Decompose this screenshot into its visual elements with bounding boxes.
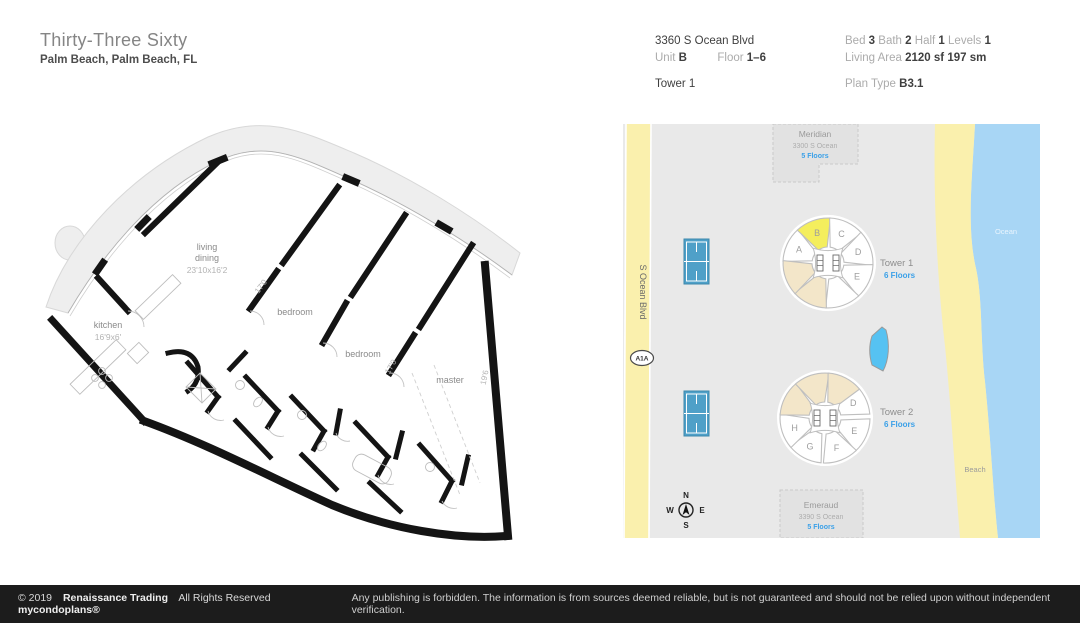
road-name-label: S Ocean Blvd <box>638 264 648 319</box>
emeraud-floors: 5 Floors <box>807 524 834 531</box>
page: Thirty-Three Sixty Palm Beach, Palm Beac… <box>0 0 1080 623</box>
plan-type-value: B3.1 <box>899 78 923 90</box>
bedroom1-label: bedroom <box>277 307 313 317</box>
footer-rights: All Rights Reserved <box>178 592 270 604</box>
title-block: Thirty-Three Sixty Palm Beach, Palm Beac… <box>40 30 197 66</box>
plan-type-label: Plan Type <box>845 78 896 90</box>
unit-letter-f[interactable]: F <box>834 443 840 453</box>
kitchen-label: kitchen <box>94 320 123 330</box>
living-dims: 23'10x16'2 <box>187 265 228 275</box>
kitchen-dims: 16'9x6' <box>95 332 122 342</box>
tower-floors-label: 6 Floors <box>884 420 916 429</box>
tower-courtyard <box>810 403 840 433</box>
meridian-floors: 5 Floors <box>801 153 828 160</box>
unit-letter-d[interactable]: D <box>855 247 862 257</box>
half-value: 1 <box>938 35 944 47</box>
tower-courtyard <box>813 248 843 278</box>
emeraud-address: 3390 S Ocean <box>799 514 844 521</box>
floor-value: 1–6 <box>747 52 766 64</box>
unit-letter-g[interactable]: G <box>806 441 813 451</box>
floorplan-drawing: kitchen 16'9x6' living dining 23'10x16'2… <box>40 115 540 555</box>
living-area-sf: 2120 sf <box>905 52 944 64</box>
unit-letter-a[interactable]: A <box>796 245 802 255</box>
page-location: Palm Beach, Palm Beach, FL <box>40 54 197 66</box>
site-map-panel: ABCDETower 16 FloorsDEFGHTower 26 Floors… <box>623 124 1040 538</box>
unit-floor-row: Unit B Floor 1–6 <box>655 51 766 66</box>
beds-baths-row: Bed 3 Bath 2 Half 1 Levels 1 <box>845 34 991 49</box>
compass-n: N <box>683 491 689 500</box>
unit-letter-h[interactable]: H <box>791 423 798 433</box>
master-dim: 19'6 <box>479 369 491 386</box>
bedroom2-label: bedroom <box>345 349 381 359</box>
footer-brand: mycondoplans® <box>18 604 100 616</box>
route-shield-a1a: A1A <box>631 351 654 366</box>
meridian-name: Meridian <box>799 129 832 139</box>
unit-value: B <box>679 52 687 64</box>
fixtures <box>70 275 480 495</box>
living-area-row: Living Area 2120 sf 197 sm <box>845 51 991 66</box>
tower-name: Tower 1 <box>655 77 766 92</box>
road <box>624 124 651 538</box>
bed-value: 3 <box>869 35 875 47</box>
levels-value: 1 <box>984 35 990 47</box>
living-label: living <box>197 242 218 252</box>
footer-disclaimer: Any publishing is forbidden. The informa… <box>352 592 1064 616</box>
tower-floors-label: 6 Floors <box>884 271 916 280</box>
unit-info-block: 3360 S Ocean Blvd Unit B Floor 1–6 Tower… <box>655 34 766 94</box>
unit-letter-e[interactable]: E <box>851 426 857 436</box>
tower-label: Tower 1 <box>880 258 913 269</box>
tennis-courts-north <box>684 239 709 284</box>
compass-w: W <box>666 506 674 515</box>
emeraud-name: Emeraud <box>804 500 839 510</box>
window-columns <box>92 154 454 276</box>
beach-label: Beach <box>964 465 985 474</box>
tennis-courts-south <box>684 391 709 436</box>
site-map: ABCDETower 16 FloorsDEFGHTower 26 Floors… <box>623 124 1040 538</box>
ocean-label: Ocean <box>995 227 1017 236</box>
master-label: master <box>436 375 464 385</box>
living-area-sm: 197 sm <box>947 52 986 64</box>
page-title: Thirty-Three Sixty <box>40 30 197 51</box>
compass-s: S <box>683 521 689 530</box>
bed-label: Bed <box>845 35 865 47</box>
footer-left: © 2019 Renaissance Trading All Rights Re… <box>18 592 352 616</box>
unit-label: Unit <box>655 52 675 64</box>
unit-letter-d[interactable]: D <box>850 398 857 408</box>
levels-label: Levels <box>948 35 981 47</box>
bath-label: Bath <box>878 35 902 47</box>
footer-copyright: © 2019 <box>18 592 52 604</box>
compass-e: E <box>699 506 705 515</box>
route-shield-text: A1A <box>635 356 648 363</box>
meridian-address: 3300 S Ocean <box>793 143 838 150</box>
half-label: Half <box>915 35 935 47</box>
living-area-label: Living Area <box>845 52 902 64</box>
floorplan-panel: kitchen 16'9x6' living dining 23'10x16'2… <box>40 115 540 555</box>
floor-label: Floor <box>717 52 743 64</box>
footer: © 2019 Renaissance Trading All Rights Re… <box>0 585 1080 623</box>
unit-letter-b[interactable]: B <box>814 228 820 238</box>
footer-company: Renaissance Trading <box>63 592 168 604</box>
unit-letter-c[interactable]: C <box>838 229 845 239</box>
dining-label: dining <box>195 253 219 263</box>
specs-block: Bed 3 Bath 2 Half 1 Levels 1 Living Area… <box>845 34 991 94</box>
address: 3360 S Ocean Blvd <box>655 34 766 49</box>
tower-label: Tower 2 <box>880 407 913 418</box>
unit-letter-e[interactable]: E <box>854 272 860 282</box>
plan-type-row: Plan Type B3.1 <box>845 77 991 92</box>
bath-value: 2 <box>905 35 911 47</box>
